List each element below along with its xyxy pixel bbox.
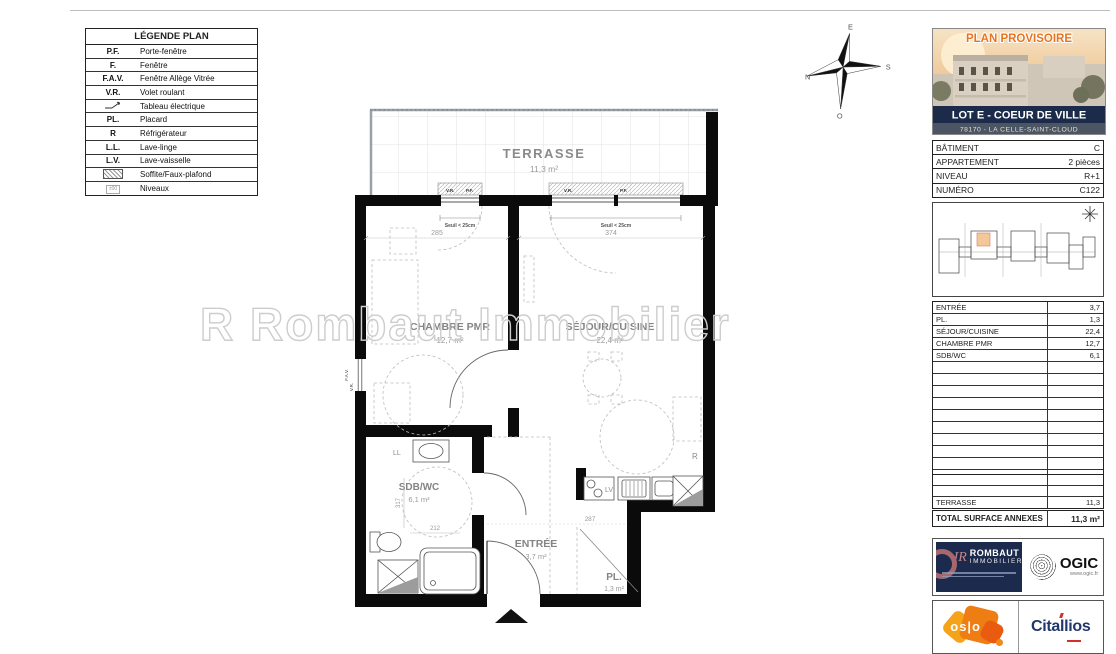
info-row-batiment: BÂTIMENT C	[933, 141, 1103, 155]
terrace-area: 11,3 m²	[530, 164, 558, 174]
width-dim-lines	[364, 236, 705, 240]
vr-label-2: V.R.	[564, 188, 572, 193]
sdb-label: SDB/WC	[399, 482, 440, 493]
rombaut-name: ROMBAUT	[970, 549, 1022, 558]
seuil-dims	[440, 215, 681, 221]
rombaut-subname: IMMOBILIER	[970, 558, 1022, 566]
dim-374: 374	[605, 230, 617, 237]
lv-label: LV	[605, 487, 613, 494]
terrace-label: TERRASSE	[503, 146, 586, 161]
area-row-chambre: CHAMBRE PMR12,7	[933, 338, 1103, 350]
r-label: R	[692, 452, 698, 461]
entree-label: ENTRÉE	[515, 537, 558, 550]
citallios-name: Citallios	[1031, 618, 1091, 636]
window-bay-sejour: V.R. P.F.	[549, 183, 683, 206]
chambre-area: 12,7 m²	[436, 336, 463, 345]
area-table: ENTRÉE3,7 PL.1,3 SÉJOUR/CUISINE22,4 CHAM…	[932, 301, 1104, 487]
ogic-name: OGIC	[1060, 557, 1098, 571]
fav-vr-label: V.R.	[349, 383, 354, 391]
plan-provisoire-label: PLAN PROVISOIRE	[966, 33, 1072, 45]
compass-east-label: E	[848, 22, 853, 31]
fav-label: F.A.V.	[344, 369, 349, 381]
dim-287: 287	[585, 516, 596, 523]
keyplan-compass-icon	[1082, 206, 1098, 222]
oslo-dot-icon	[996, 639, 1003, 646]
oslo-logo: os|o	[933, 601, 1019, 653]
placard-area: 1,3 m²	[604, 586, 625, 593]
area-row-empty	[933, 386, 1103, 398]
unit-info-table: BÂTIMENT C APPARTEMENT 2 pièces NIVEAU R…	[932, 140, 1104, 198]
logo-card-top: JR ROMBAUT IMMOBILIER OGIC www.ogic.fr	[932, 538, 1104, 596]
level-chip-icon: ±00	[106, 185, 120, 194]
key-plan-box	[932, 202, 1104, 297]
dim-285: 285	[431, 230, 443, 237]
compass-west-label: O	[837, 112, 843, 121]
sejour-label: SÉJOUR/CUISINE	[566, 320, 655, 333]
fav-window: F.A.V. V.R.	[344, 356, 366, 394]
legend-row-soffite: Soffite/Faux-plafond	[86, 168, 257, 182]
rombaut-contact-line	[942, 576, 1004, 578]
total-annexes-row: TOTAL SURFACE ANNEXES 11,3 m²	[933, 511, 1103, 526]
info-row-appartement: APPARTEMENT 2 pièces	[933, 155, 1103, 169]
rombaut-logo: JR ROMBAUT IMMOBILIER	[936, 542, 1022, 592]
area-row-empty	[933, 398, 1103, 410]
pf-label-2: P.F.	[620, 188, 627, 193]
rombaut-address-line	[942, 572, 1016, 574]
seuil-label-1: Seuil < 25cm	[445, 223, 476, 229]
chambre-label: CHAMBRE PMR	[410, 321, 490, 333]
sdb-area: 6,1 m²	[408, 495, 430, 504]
ogic-logo: OGIC www.ogic.fr	[1025, 539, 1103, 595]
legend-row-fav: F.A.V. Fenêtre Allège Vitrée	[86, 72, 257, 86]
total-annexes-table: TOTAL SURFACE ANNEXES 11,3 m²	[932, 510, 1104, 527]
entree-area: 3,7 m²	[525, 552, 547, 561]
lot-subtitle: 78170 - LA CELLE-SAINT-CLOUD	[960, 127, 1078, 134]
oslo-name: os|o	[950, 619, 981, 634]
top-rule	[70, 10, 1110, 11]
electric-symbol-icon	[104, 101, 122, 110]
info-row-numero: NUMÉRO C122	[933, 184, 1103, 197]
annex-table: TERRASSE 11,3	[932, 474, 1104, 509]
seuil-label-2: Seuil < 25cm	[601, 223, 632, 229]
info-row-niveau: NIVEAU R+1	[933, 169, 1103, 183]
floor-plan: TERRASSE 11,3 m² V.R. P.F. V.R. P.F. Seu…	[340, 88, 730, 633]
entrance-arrow-icon	[495, 609, 528, 623]
fingerprint-icon	[1030, 554, 1056, 580]
sejour-area: 22,4 m²	[596, 336, 623, 345]
ll-label: LL	[393, 450, 401, 457]
legend-title: LÉGENDE PLAN	[86, 29, 257, 45]
area-row-empty	[933, 374, 1103, 386]
legend-row-r: R Réfrigérateur	[86, 127, 257, 141]
dim-212: 212	[430, 526, 441, 532]
terrace: TERRASSE 11,3 m²	[370, 110, 718, 195]
legend-row-vr: V.R. Volet roulant	[86, 86, 257, 100]
annex-row-empty	[933, 486, 1103, 497]
logo-card-bottom: os|o Citallios	[932, 600, 1104, 654]
annex-row-terrasse: TERRASSE 11,3	[933, 497, 1103, 508]
annex-row-empty	[933, 475, 1103, 486]
area-row-pl: PL.1,3	[933, 314, 1103, 326]
project-photo-card: PLAN PROVISOIRE LOT E - COEUR DE VILLE 7…	[932, 28, 1106, 135]
legend-row-f: F. Fenêtre	[86, 59, 257, 73]
legend-row-pl: PL. Placard	[86, 113, 257, 127]
vr-label-1: V.R.	[446, 188, 454, 193]
bathroom-fixtures	[370, 440, 480, 594]
area-row-empty	[933, 434, 1103, 446]
legend-row-ll: L.L. Lave-linge	[86, 141, 257, 155]
citallios-logo: Citallios	[1019, 601, 1104, 653]
area-row-empty	[933, 410, 1103, 422]
project-photo: PLAN PROVISOIRE LOT E - COEUR DE VILLE 7…	[933, 29, 1105, 134]
hatch-swatch-icon	[103, 169, 123, 179]
pf-label-1: P.F.	[466, 188, 473, 193]
legend-row-pf: P.F. Porte-fenêtre	[86, 45, 257, 59]
citallios-underline-icon	[1067, 640, 1081, 642]
area-row-empty	[933, 422, 1103, 434]
area-row-empty	[933, 458, 1103, 470]
area-row-sdb: SDB/WC6,1	[933, 350, 1103, 362]
area-row-empty	[933, 362, 1103, 374]
lot-title: LOT E - COEUR DE VILLE	[952, 110, 1086, 122]
dim-317: 317	[396, 497, 402, 508]
compass-north-label: N	[805, 72, 810, 81]
legend-row-electric: Tableau électrique	[86, 100, 257, 114]
window-swing-arcs	[438, 206, 616, 273]
legend-row-lv: L.V. Lave-vaisselle	[86, 155, 257, 169]
legend-row-niveaux: ±00 Niveaux	[86, 182, 257, 195]
legend-box: LÉGENDE PLAN P.F. Porte-fenêtre F. Fenêt…	[85, 28, 258, 196]
highlighted-unit	[977, 233, 990, 246]
placard-label: PL.	[606, 572, 622, 583]
window-bay-chambre: V.R. P.F.	[438, 183, 482, 206]
compass-south-label: S	[886, 63, 891, 72]
area-row-entree: ENTRÉE3,7	[933, 302, 1103, 314]
key-plan	[933, 203, 1103, 296]
area-row-empty	[933, 446, 1103, 458]
compass-rose: E S O N	[798, 22, 898, 122]
area-row-sejour: SÉJOUR/CUISINE22,4	[933, 326, 1103, 338]
